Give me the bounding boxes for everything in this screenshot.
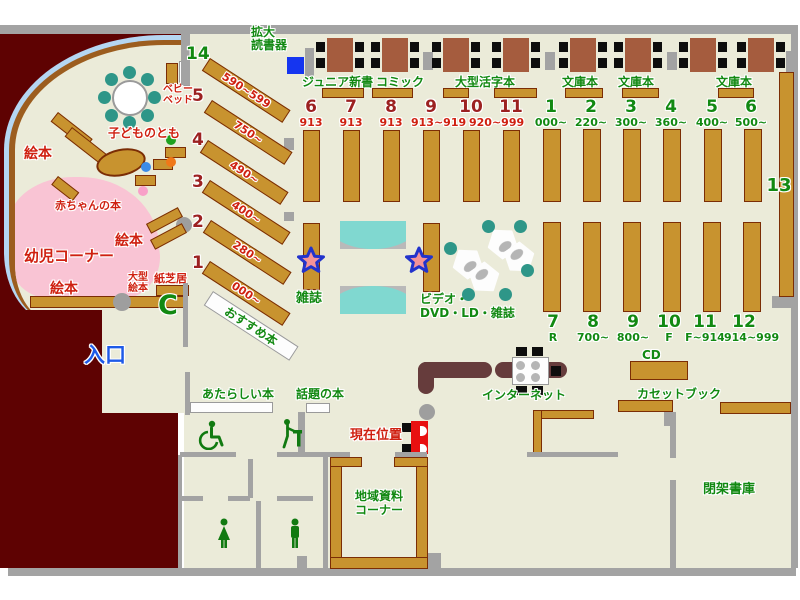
stack-red-11: 11 (491, 99, 531, 117)
pillar (284, 212, 294, 221)
bookshelf-column (423, 130, 440, 202)
closed-stacks-label: 閉架書庫 (703, 483, 755, 496)
baby-books-label: 赤ちゃんの本 (55, 199, 121, 212)
local-corner-shelf (416, 457, 428, 569)
bookshelf-column (623, 129, 641, 202)
bookshelf-column (543, 222, 561, 312)
stack-green-10: 10F (649, 314, 689, 343)
public-phone-icon: C (158, 290, 178, 321)
stack-green-3: 3300~ (611, 99, 651, 128)
bookshelf-column (663, 129, 681, 202)
chairs (316, 42, 325, 52)
bookshelf-column (303, 130, 320, 202)
pillar (423, 52, 433, 70)
topic-books-label: 話題の本 (296, 388, 344, 401)
baby-bed-shelf (166, 63, 178, 84)
diag-shelf-2-number: 2 (192, 212, 204, 232)
kids-step-shelf (165, 147, 186, 158)
wall-segment (228, 496, 250, 501)
orange-stool (166, 157, 176, 167)
local-corner-shelf (330, 557, 428, 569)
bookshelf-column (343, 130, 360, 202)
cassette-shelf (720, 402, 791, 414)
wall-segment (256, 501, 261, 568)
shelf-13-label: 13 (760, 175, 798, 196)
stack-red-9: 9913~919 (411, 99, 451, 128)
wall-segment (670, 412, 676, 458)
stack-red-10: 10920~999 (451, 99, 491, 128)
exterior-block-bottomleft (102, 413, 178, 568)
kids-step-shelf (135, 175, 156, 186)
picture-books-label: 絵本 (24, 148, 52, 161)
stack-green-5: 5400~ (692, 99, 732, 128)
library-floor-map: 絵本 子どものとも 赤ちゃんの本 幼児コーナー 絵本 絵本 大型 絵本 紙芝居 … (0, 0, 800, 600)
topic-books-shelf (306, 403, 330, 413)
magnifier-chair (305, 48, 314, 77)
new-books-shelf (190, 402, 273, 413)
kids-round-table-chairs (123, 66, 136, 79)
magazine-label: 雑誌 (296, 292, 322, 305)
reading-table (382, 38, 408, 72)
blue-stool (141, 162, 151, 172)
chairs (614, 42, 623, 52)
baby-bed-label: ベビー ベッド (163, 84, 193, 106)
wall-segment (527, 452, 618, 457)
reading-table (690, 38, 716, 72)
reading-table (327, 38, 353, 72)
wall-segment (178, 455, 182, 568)
bookshelf-column (583, 129, 601, 202)
stack-green-9: 9800~ (613, 314, 653, 343)
chairs (679, 42, 688, 52)
diag-shelf-3-number: 3 (192, 172, 204, 192)
reading-table (625, 38, 651, 72)
wall-segment (670, 480, 676, 568)
reading-table (570, 38, 596, 72)
bookshelf-column (583, 222, 601, 312)
shelf (541, 410, 594, 419)
local-corner-shelf (394, 457, 428, 467)
cd-shelf (630, 361, 688, 380)
internet-seats (516, 361, 525, 370)
internet-label: インターネット (482, 389, 566, 402)
magnifier-label: 拡大 読書器 (251, 26, 287, 52)
chairs (737, 42, 746, 52)
pillar (545, 52, 555, 70)
pink-stool (138, 186, 148, 196)
carrel-chairs (444, 242, 457, 255)
stack-green-2: 2220~ (571, 99, 611, 128)
local-corner-shelf (330, 457, 362, 467)
diag-shelf-5-number: 5 (192, 86, 204, 106)
diag-shelf-14-number: 14 (186, 44, 210, 64)
service-counter (418, 362, 492, 378)
kids-corner-area (0, 33, 186, 310)
carrel-seat (474, 267, 491, 282)
av-label: ビデオ・ DVD・LD・雑誌 (420, 292, 515, 320)
reading-table (443, 38, 469, 72)
diag-shelf-1-number: 1 (192, 253, 204, 273)
local-corner-label: 地域資料 コーナー (346, 489, 412, 517)
bookshelf-column (743, 222, 761, 312)
wall-segment (180, 452, 236, 457)
bookshelf-column (503, 130, 520, 202)
internet-chairs (516, 347, 527, 356)
stack-green-8: 8700~ (573, 314, 613, 343)
stack-green-12: 12914~999 (724, 314, 764, 343)
cd-label: CD (642, 349, 661, 362)
current-location-label: 現在位置 (350, 429, 402, 442)
pillar-round (419, 404, 435, 420)
reading-table (748, 38, 774, 72)
bookshelf-column (383, 130, 400, 202)
stack-green-6: 6500~ (731, 99, 771, 128)
chairs (371, 42, 380, 52)
carrel-seat (509, 247, 526, 262)
bench-cushion (340, 221, 406, 249)
internet-chair (551, 366, 561, 376)
bench-cushion (340, 286, 406, 314)
marker-chairs (402, 423, 411, 432)
stack-green-11: 11F~914 (685, 314, 725, 343)
stack-red-6: 6913 (291, 99, 331, 128)
bench-seat (340, 221, 406, 249)
wall-segment (183, 283, 188, 347)
wall-segment (323, 457, 328, 568)
entrance-label: 入口 (84, 339, 126, 369)
wheelchair-icon (196, 420, 224, 450)
toddler-corner-label: 幼児コーナー (24, 250, 114, 263)
wall-segment (297, 556, 307, 568)
bookshelf-column (543, 129, 561, 202)
junior-shinsho-shelf (322, 88, 364, 98)
female-toilet-icon (212, 518, 236, 550)
bookshelf-column (623, 222, 641, 312)
bunko-shelf (565, 88, 603, 98)
bench-seat (340, 286, 406, 314)
magnifier-device-icon (287, 57, 304, 74)
reading-table (503, 38, 529, 72)
star-marker-icon (297, 246, 325, 274)
wall-segment (180, 496, 203, 501)
wall-top (0, 25, 798, 34)
stack-green-1: 1000~ (531, 99, 571, 128)
stack-red-8: 8913 (371, 99, 411, 128)
bookshelf-column (704, 129, 722, 202)
stack-green-7: 7R (533, 314, 573, 343)
chairs (559, 42, 568, 52)
drinking-fountain-icon (279, 416, 305, 450)
cassette-shelf (618, 400, 673, 412)
picture-books-label: 絵本 (50, 283, 78, 296)
star-marker-icon (405, 246, 433, 274)
kids-round-table (112, 80, 148, 116)
large-picture-books-label: 大型 絵本 (128, 272, 148, 294)
wall-segment (428, 553, 441, 568)
kodomo-no-tomo-label: 子どものとも (108, 127, 180, 140)
stack-green-4: 4360~ (651, 99, 691, 128)
chairs (492, 42, 501, 52)
wall-bottom (8, 568, 796, 576)
pillar (667, 52, 677, 70)
kids-door-post (113, 293, 131, 311)
wall-segment (248, 459, 253, 498)
pillar (772, 296, 796, 308)
bookshelf-column (463, 130, 480, 202)
bookshelf-column (663, 222, 681, 312)
chairs (432, 42, 441, 52)
picture-books-label: 絵本 (115, 235, 143, 248)
stack-red-7: 7913 (331, 99, 371, 128)
wall-segment (277, 496, 313, 501)
new-books-label: あたらしい本 (202, 388, 274, 401)
bookshelf-column (703, 222, 721, 312)
male-toilet-icon (284, 518, 306, 550)
local-corner-shelf (330, 457, 342, 569)
